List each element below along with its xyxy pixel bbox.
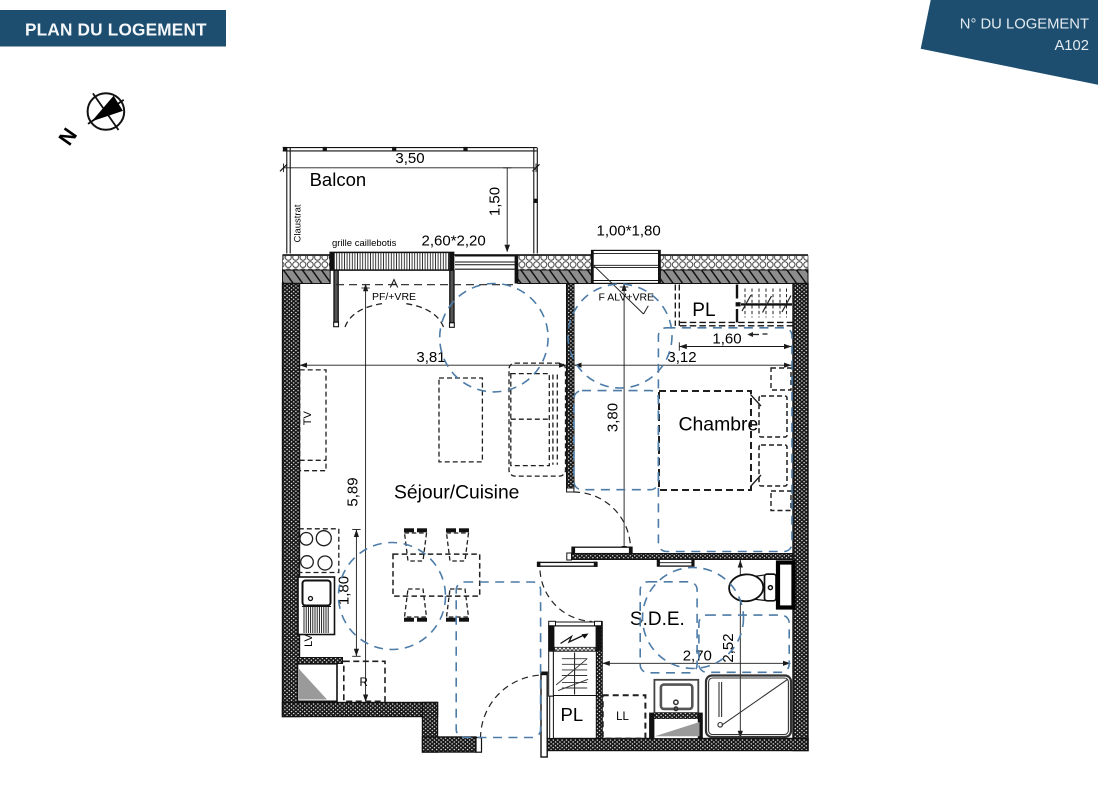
svg-text:PL: PL: [561, 704, 584, 725]
svg-text:N° DU LOGEMENT: N° DU LOGEMENT: [960, 17, 1089, 33]
svg-text:S.D.E.: S.D.E.: [630, 609, 685, 630]
svg-text:3,50: 3,50: [395, 150, 424, 167]
svg-text:grille caillebotis: grille caillebotis: [332, 238, 397, 249]
svg-text:PF/+VRE: PF/+VRE: [372, 291, 416, 303]
svg-text:2,60*2,20: 2,60*2,20: [422, 233, 486, 250]
svg-text:F ALV+VRE: F ALV+VRE: [599, 292, 655, 304]
svg-text:Balcon: Balcon: [310, 169, 367, 190]
svg-text:A102: A102: [1054, 38, 1089, 54]
svg-text:5,89: 5,89: [345, 477, 362, 506]
svg-text:3,12: 3,12: [667, 349, 696, 366]
svg-text:Séjour/Cuisine: Séjour/Cuisine: [394, 483, 519, 504]
svg-text:LV: LV: [303, 634, 315, 647]
svg-text:PL: PL: [692, 300, 715, 321]
svg-text:1,60: 1,60: [712, 331, 741, 348]
svg-text:TV: TV: [302, 411, 314, 426]
svg-text:LL: LL: [616, 711, 629, 723]
svg-text:Claustrat: Claustrat: [293, 204, 304, 242]
svg-text:3,80: 3,80: [605, 403, 622, 432]
svg-text:Chambre: Chambre: [679, 414, 759, 436]
svg-text:1,50: 1,50: [487, 187, 504, 216]
svg-text:PLAN DU LOGEMENT: PLAN DU LOGEMENT: [25, 20, 207, 40]
svg-text:R: R: [360, 677, 368, 689]
svg-text:1,00*1,80: 1,00*1,80: [597, 223, 661, 240]
